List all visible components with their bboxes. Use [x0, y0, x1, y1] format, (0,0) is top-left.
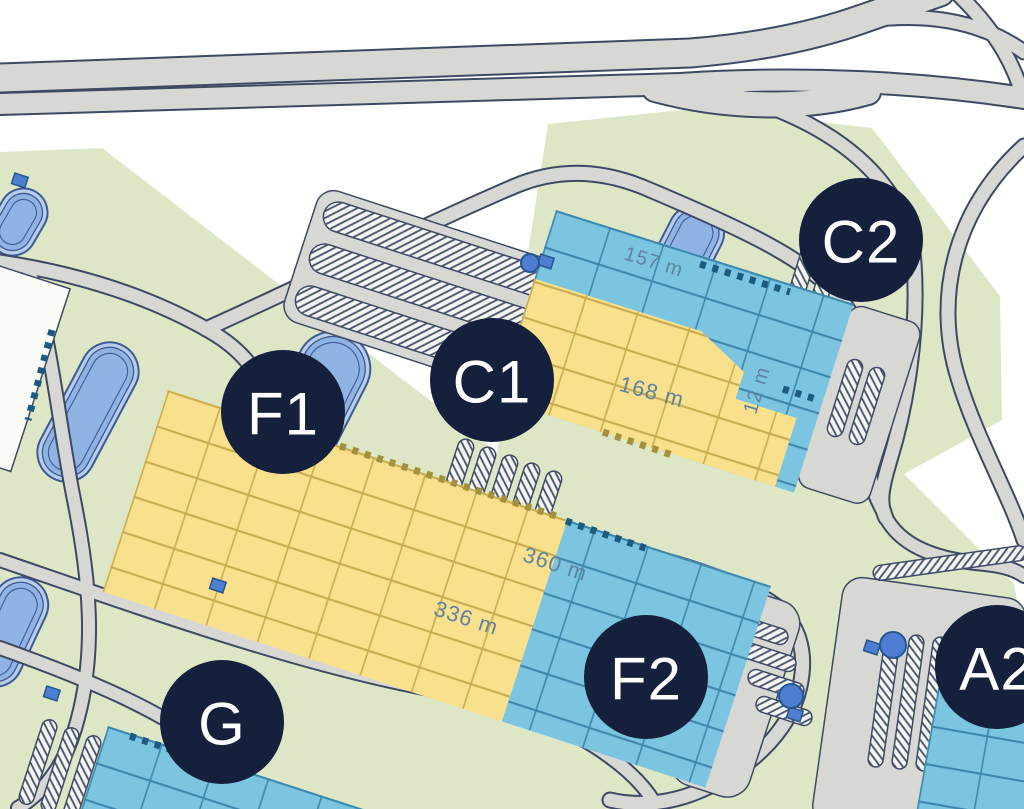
road — [0, 0, 940, 78]
marker-label: G — [198, 691, 246, 758]
marker-label: A2 — [959, 636, 1024, 703]
building-marker-c1[interactable]: C1 — [430, 318, 554, 442]
building-marker-c2[interactable]: C2 — [799, 178, 923, 302]
building-marker-f2[interactable]: F2 — [584, 615, 708, 739]
small-pond-icon — [521, 254, 539, 272]
marker-label: C1 — [453, 349, 532, 416]
site-plan: 157 m168 m12 m360 m336 mC2C1F1F2GA2 — [0, 0, 1024, 809]
building-marker-f1[interactable]: F1 — [221, 350, 345, 474]
site-plan-map: 157 m168 m12 m360 m336 mC2C1F1F2GA2 — [0, 0, 1024, 809]
marker-label: F1 — [247, 381, 319, 448]
small-pond-icon — [880, 632, 906, 658]
marker-label: F2 — [610, 646, 682, 713]
small-pond-icon — [779, 684, 803, 708]
marker-label: C2 — [822, 209, 901, 276]
building-marker-g[interactable]: G — [160, 660, 284, 784]
